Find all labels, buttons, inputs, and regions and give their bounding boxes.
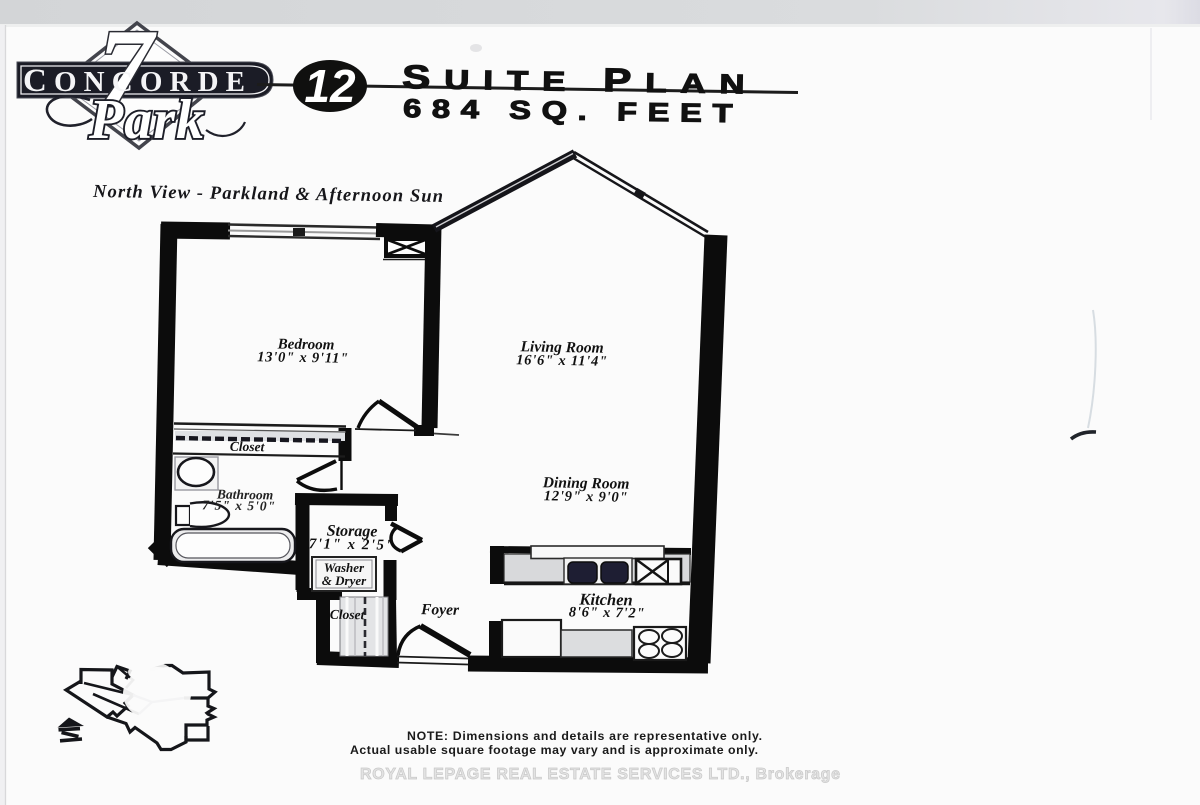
svg-text:13'0" x 9'11": 13'0" x 9'11": [257, 349, 349, 367]
svg-text:7'5" x 5'0": 7'5" x 5'0": [202, 497, 276, 513]
svg-text:& Dryer: & Dryer: [322, 573, 367, 588]
svg-text:Foyer: Foyer: [420, 601, 460, 619]
svg-text:ROYAL LEPAGE REAL ESTATE SERVI: ROYAL LEPAGE REAL ESTATE SERVICES LTD., …: [360, 766, 840, 783]
svg-text:684 SQ. FEET: 684 SQ. FEET: [403, 94, 743, 128]
svg-text:Park: Park: [88, 89, 205, 151]
svg-text:12: 12: [304, 60, 356, 112]
svg-text:16'6" x 11'4": 16'6" x 11'4": [516, 352, 608, 370]
svg-text:Closet: Closet: [230, 439, 266, 455]
svg-text:Actual usable square footage m: Actual usable square footage may vary an…: [350, 743, 758, 757]
svg-text:12'9" x 9'0": 12'9" x 9'0": [544, 488, 629, 505]
svg-text:7'1" x 2'5": 7'1" x 2'5": [309, 536, 396, 554]
svg-text:NOTE: Dimensions and details a: NOTE: Dimensions and details are represe…: [407, 729, 762, 743]
svg-text:Closet: Closet: [330, 607, 366, 623]
svg-text:8'6" x 7'2": 8'6" x 7'2": [569, 604, 646, 621]
